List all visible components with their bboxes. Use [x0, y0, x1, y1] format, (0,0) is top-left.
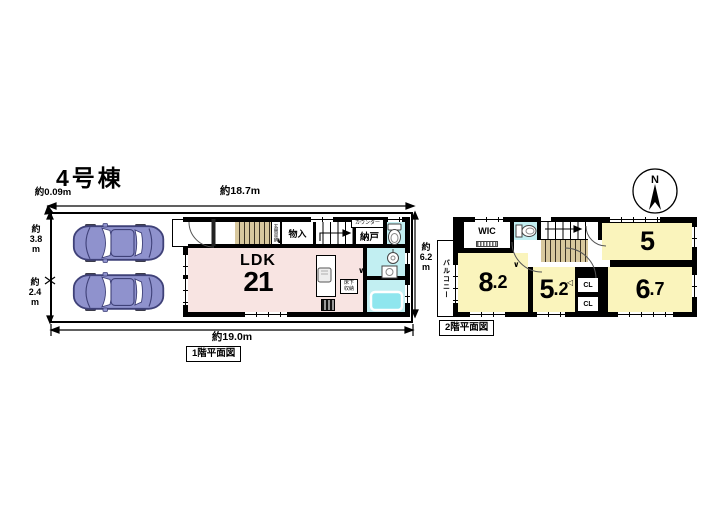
ldk-label-block: LDK 21: [213, 252, 303, 295]
staircase-2f-lower: [541, 239, 588, 262]
monoire-label: 物入: [288, 227, 306, 240]
room-8-2-int: 8: [478, 269, 492, 296]
toilet-room-2f: [514, 222, 537, 240]
kitchen-stove: [321, 299, 335, 311]
window-ldk-west1: [183, 255, 188, 275]
room-5-2: 5.2: [533, 267, 575, 312]
genkan: [188, 222, 235, 244]
balcony: バルコニー: [437, 240, 454, 317]
counter-label: カウンター: [351, 219, 384, 228]
wall-marker: [541, 217, 551, 221]
staircase-1f: [316, 222, 353, 244]
window-5-east: [692, 227, 697, 247]
window-toilet-north: [388, 217, 402, 222]
window-67-south: [618, 312, 673, 317]
building-2f: WIC 5 8.2 5.2 6.7 CL CL ◁ ▷ ∨: [453, 217, 697, 317]
dim-left-upper: 約 3.8 m: [26, 224, 46, 254]
dim-bottom: 約19.0m: [192, 332, 272, 342]
dim-top-offset: 約0.09m: [26, 188, 80, 198]
room-6-7: 6.7: [608, 267, 692, 312]
toilet-room-1f: [387, 222, 405, 244]
room-5-2-int: 5: [539, 276, 553, 303]
window-ldk-south: [245, 312, 287, 317]
closet-upper: CL: [577, 277, 599, 293]
dim-top: 約18.7m: [200, 186, 280, 196]
room-5-label: 5: [640, 228, 654, 255]
wic-label: WIC: [478, 226, 496, 236]
dim-right: 約 6.2 m: [417, 242, 435, 272]
window-67-east: [692, 275, 697, 297]
window-ldk-west2: [183, 279, 188, 305]
door-mark-monoire: ∨: [276, 237, 283, 245]
balcony-label: バルコニー: [441, 259, 451, 299]
window-82-south: [470, 312, 506, 317]
window-washroom-east: [405, 253, 410, 265]
room-6-7-dec: .7: [650, 279, 665, 300]
door-mark-2f: ∨: [513, 261, 520, 269]
ldk-size-label: 21: [213, 269, 303, 295]
washroom: [367, 248, 405, 276]
closet-lower-label: CL: [583, 301, 592, 308]
hall-2f-strip: [588, 222, 598, 267]
floorplan-page: 4号棟 約0.09m 約18.7m 約 3.8 m 約 2.4 m 約19.0m…: [0, 0, 705, 525]
genkan-stairs: [235, 222, 271, 244]
bathroom: [367, 280, 405, 312]
window-5-north: [610, 217, 660, 222]
monoire-closet: 物入: [282, 222, 313, 244]
closet-upper-label: CL: [583, 282, 592, 289]
caption-2f: 2階平面図: [439, 320, 494, 336]
staircase-2f-upper: [541, 222, 588, 239]
kitchen-island: [316, 255, 336, 297]
caption-1f: 1階平面図: [186, 346, 241, 362]
nando-label: 納戸: [356, 229, 383, 243]
window-52-south: [537, 312, 565, 317]
closet-lower: CL: [577, 296, 599, 312]
window-82-balcony: [453, 265, 458, 303]
compass-circle: [633, 169, 677, 213]
door-mark-washroom: ∨: [358, 267, 365, 275]
window-north1: [311, 217, 333, 222]
window-bath-east: [405, 285, 410, 303]
wic-shelf: [476, 241, 498, 247]
compass-needle: [649, 184, 661, 210]
room-6-7-int: 6: [635, 276, 649, 303]
room-8-2-dec: .2: [493, 272, 508, 293]
building-1f: 玄関収納 物入 カウンター 納戸 LDK 21 床下 収納 ∨ ∨: [183, 217, 410, 317]
compass: N: [633, 169, 677, 213]
underfloor-storage-label: 床下 収納: [340, 279, 358, 294]
dim-left-lower: 約 2.4 m: [25, 277, 45, 307]
closet-door-left: ◁: [567, 279, 573, 287]
closet-door-right: ▷: [599, 300, 605, 308]
compass-n-label: N: [651, 174, 659, 186]
room-5: 5: [602, 223, 692, 260]
window-wic-north: [475, 217, 503, 222]
